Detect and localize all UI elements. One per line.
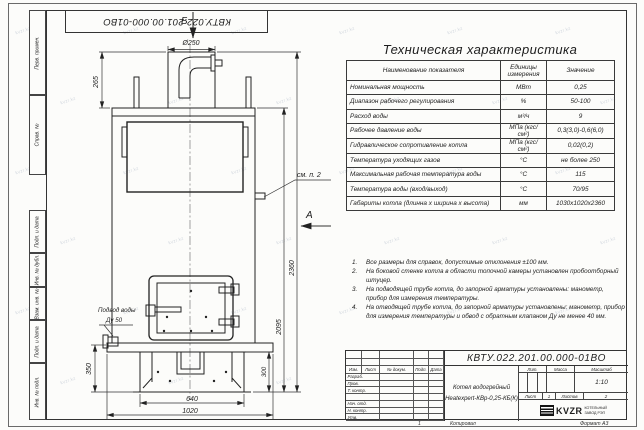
tb-cell: [380, 394, 414, 401]
tb-cell: [429, 394, 444, 401]
note-item: 1.Все размеры для справок, допустимые от…: [352, 259, 626, 268]
param-units: мм: [501, 196, 547, 210]
param-value: 1030х1020х2360: [547, 196, 615, 210]
view-a-label: А: [305, 210, 313, 221]
param-units: %: [501, 95, 547, 109]
table-row: Габариты котла (длинна х ширина х высота…: [347, 196, 615, 210]
param-units: МПа (кгс/см²): [501, 138, 547, 153]
param-value: 9: [547, 109, 615, 123]
param-units: МПа (кгс/см²): [501, 123, 547, 138]
tb-cell: [380, 374, 414, 381]
note-text: На боковой стенке котла в области топочн…: [366, 268, 626, 286]
flue-flange: [211, 55, 215, 71]
titleblock-doc-number: КВТУ.022.201.00.000-01ВО: [444, 351, 628, 366]
param-value: 0,25: [547, 81, 615, 95]
table-row: Рабочее давление водыМПа (кгс/см²)0,3(3,…: [347, 123, 615, 138]
lit-cell: [537, 373, 546, 393]
tb-cell: [429, 408, 444, 415]
tb-cell: [380, 408, 414, 415]
note-number: 4.: [352, 304, 366, 322]
sampling-fitting: [255, 193, 265, 199]
dim-300: 300: [261, 366, 268, 377]
mass-header: Масса: [546, 366, 574, 373]
tb-cell: [429, 414, 444, 421]
zone-mark: 1: [418, 421, 421, 427]
tb-header-podp: Подп.: [414, 366, 429, 374]
tb-cell: [346, 351, 362, 359]
flue-elbow-inner: [190, 68, 211, 98]
table-row: Номинальная мощностьМВт0,25: [347, 81, 615, 95]
tb-cell: [414, 401, 429, 408]
see-note-2-label: см. п. 2: [297, 172, 321, 179]
door-handle: [155, 307, 181, 312]
col-value-header: Значение: [547, 61, 615, 81]
copied-label: Копировал: [450, 421, 476, 427]
note-text: На отводящей трубе котла, до запорной ар…: [366, 304, 626, 322]
organization-cell: KVZR КОТЕЛЬНЫЙ ЗАВОД РЭП: [518, 400, 628, 421]
tb-cell: [414, 374, 429, 381]
tb-header-list: Лист: [362, 366, 380, 374]
note-text: Все размеры для справок, допустимые откл…: [366, 259, 626, 268]
scale-header: Масштаб: [574, 366, 628, 373]
tb-cell: [346, 359, 362, 367]
tb-cell: [380, 381, 414, 388]
lifting-lug-right: [246, 77, 251, 108]
note-number: 3.: [352, 286, 366, 304]
door-hinge-bottom: [219, 319, 234, 325]
tb-row-nkontr: Н. контр.: [346, 408, 380, 415]
chimney-stub: [168, 52, 215, 108]
tb-header-dokum: № докум.: [380, 366, 414, 374]
dim-1020: 1020: [182, 408, 198, 415]
tb-row-prov: Пров.: [346, 381, 380, 388]
dim-640: 640: [186, 396, 198, 403]
sheet-value: 1: [542, 393, 555, 400]
drawing-sheet: kvzr.kzkvzr.kzkvzr.kzkvzr.kzkvzr.kzkvzr.…: [0, 0, 644, 430]
lit-header: Лит.: [518, 366, 546, 373]
table-row: Температура уходящих газов°Сне более 250: [347, 153, 615, 167]
tb-cell: [414, 408, 429, 415]
base-plinth: [140, 352, 244, 392]
table-row: Температура воды (вход/выход)°С70/95: [347, 182, 615, 196]
note-number: 1.: [352, 259, 366, 268]
tb-row-blank: [346, 394, 380, 401]
lit-cell: [527, 373, 536, 393]
dimension-labels: Б Ø250 265 2095 2360 300 350 640 1020 см…: [86, 16, 321, 415]
logo-sub-line2: ЗАВОД РЭП: [584, 411, 607, 415]
mass-cell: [546, 373, 574, 393]
param-name: Максимальная рабочая температура воды: [347, 168, 501, 182]
tb-cell: [429, 374, 444, 381]
tb-cell: [362, 351, 380, 359]
lifting-lug-left: [134, 77, 139, 108]
note-item: 4.На отводящей трубе котла, до запорной …: [352, 304, 626, 322]
sheet-label: Лист: [518, 393, 542, 400]
table-row: Диапазон рабочего регулирования%50-100: [347, 95, 615, 109]
lit-cell: [518, 373, 527, 393]
param-name: Гидравлическое сопротивление котла: [347, 138, 501, 153]
tech-table-header-row: Наименование показателя Единицы измерени…: [347, 61, 615, 81]
col-name-header: Наименование показателя: [347, 61, 501, 81]
door-handle-mount: [146, 305, 155, 316]
product-name-line1: Котел водогрейный: [453, 383, 510, 393]
param-name: Диапазон рабочего регулирования: [347, 95, 501, 109]
dim-265: 265: [93, 76, 100, 89]
note-item: 2.На боковой стенке котла в области топо…: [352, 268, 626, 286]
sheets-value: 2: [583, 393, 628, 400]
kvzr-logo-icon: [540, 405, 554, 416]
table-row: Гидравлическое сопротивление котлаМПа (к…: [347, 138, 615, 153]
tb-cell: [429, 381, 444, 388]
note-item: 3.На подводящей трубе котла, до запорной…: [352, 286, 626, 304]
table-row: Расход водым³/ч9: [347, 109, 615, 123]
param-name: Температура уходящих газов: [347, 153, 501, 167]
tb-header-izm: Изм.: [346, 366, 362, 374]
param-units: м³/ч: [501, 109, 547, 123]
param-value: 0,02(0,2): [547, 138, 615, 153]
boiler-bolts: [157, 290, 227, 382]
dim-2360: 2360: [289, 260, 296, 277]
sheets-label: Листов: [555, 393, 583, 400]
tb-row-razrab: Разраб.: [346, 374, 380, 381]
tb-header-data: Дата: [429, 366, 444, 374]
tech-table: Наименование показателя Единицы измерени…: [346, 60, 615, 211]
note-number: 2.: [352, 268, 366, 286]
tb-cell: [414, 414, 429, 421]
table-row: Максимальная рабочая температура воды°С1…: [347, 168, 615, 182]
tb-row-utv: Утв.: [346, 414, 380, 421]
dim-d250: Ø250: [181, 40, 199, 47]
notes-list: 1.Все размеры для справок, допустимые от…: [352, 259, 626, 322]
dim-350: 350: [86, 363, 93, 375]
param-value: 70/95: [547, 182, 615, 196]
param-units: МВт: [501, 81, 547, 95]
tb-cell: [429, 351, 444, 359]
tb-cell: [380, 359, 414, 367]
title-block: Изм. Лист № докум. Подп. Дата Разраб. Пр…: [345, 350, 627, 420]
tb-cell: [414, 351, 429, 359]
param-name: Расход воды: [347, 109, 501, 123]
dim-2095: 2095: [276, 319, 283, 336]
flue-elbow: [179, 57, 211, 98]
param-name: Номинальная мощность: [347, 81, 501, 95]
tb-cell: [380, 414, 414, 421]
param-name: Температура воды (вход/выход): [347, 182, 501, 196]
format-label: Формат А3: [580, 421, 608, 427]
param-units: °С: [501, 168, 547, 182]
kvzr-logo-subtitle: КОТЕЛЬНЫЙ ЗАВОД РЭП: [584, 406, 607, 415]
tb-cell: [414, 359, 429, 367]
param-name: Рабочее давление воды: [347, 123, 501, 138]
tb-cell: [414, 394, 429, 401]
tb-cell: [414, 381, 429, 388]
tb-row-nachotd: Нач. отд.: [346, 401, 380, 408]
door-hinge-top: [219, 287, 234, 293]
tb-row-tkontr: Т. контр.: [346, 387, 380, 394]
tb-cell: [380, 387, 414, 394]
water-inlet-label-1: Подвод воды: [98, 307, 136, 314]
param-units: °С: [501, 182, 547, 196]
col-units-header: Единицы измерения: [501, 61, 547, 81]
tb-cell: [362, 359, 380, 367]
tb-cell: [414, 387, 429, 394]
tb-cell: [380, 401, 414, 408]
dimension-lines: [91, 12, 331, 419]
upper-panel: [127, 122, 243, 192]
tb-cell: [429, 359, 444, 367]
param-value: не более 250: [547, 153, 615, 167]
scale-value: 1:10: [574, 373, 628, 393]
param-value: 0,3(3,0)-0,6(6,0): [547, 123, 615, 138]
boiler-outline: [103, 52, 273, 392]
product-name-line2: Heatexpert-КВр-0,25-КБ(К): [445, 394, 518, 404]
param-units: °С: [501, 153, 547, 167]
param-value: 115: [547, 168, 615, 182]
titleblock-product-name: Котел водогрейный Heatexpert-КВр-0,25-КБ…: [444, 366, 518, 421]
param-value: 50-100: [547, 95, 615, 109]
tb-cell: [429, 401, 444, 408]
titleblock-signature-grid: Изм. Лист № докум. Подп. Дата Разраб. Пр…: [346, 351, 445, 421]
water-inlet-label-2: Ду 50: [105, 317, 123, 324]
kvzr-logo-text: KVZR: [556, 406, 583, 416]
tb-cell: [429, 387, 444, 394]
tb-cell: [380, 351, 414, 359]
note-text: На подводящей трубе котла, до запорной а…: [366, 286, 626, 304]
view-b-label: Б: [181, 16, 188, 27]
param-name: Габариты котла (длинна х ширина х высота…: [347, 196, 501, 210]
tech-table-title: Техническая характеристика: [346, 42, 614, 57]
